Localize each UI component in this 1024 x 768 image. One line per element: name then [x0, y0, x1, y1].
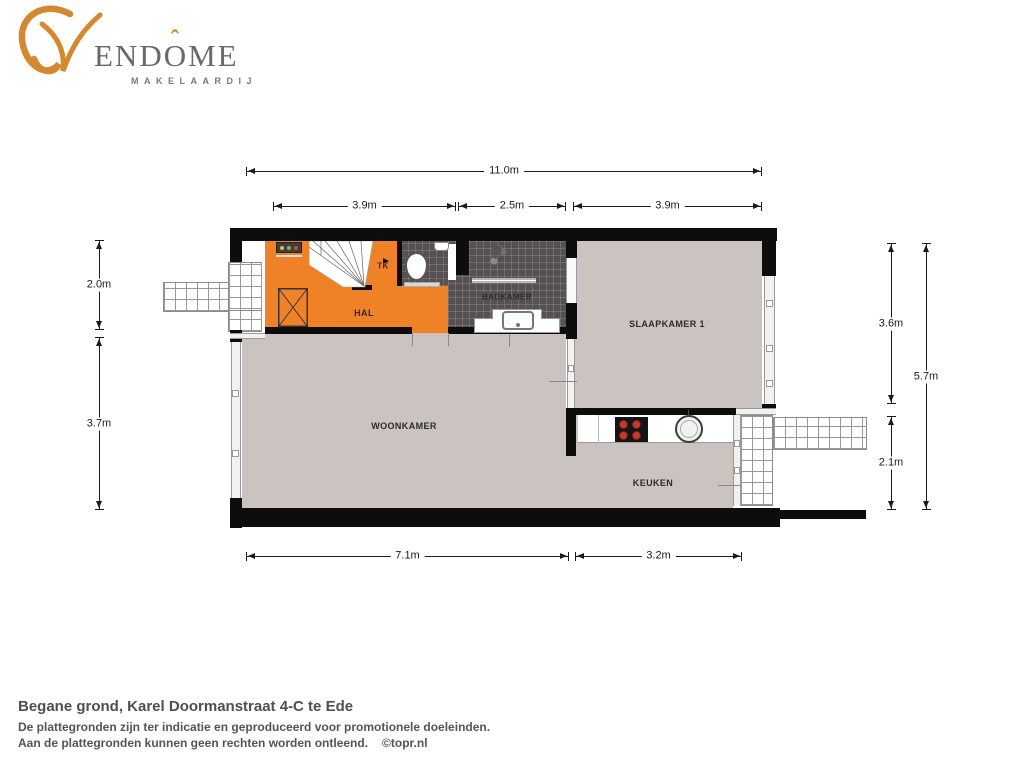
- wall-bottom: [230, 508, 780, 527]
- logo-v-icon: [14, 4, 104, 90]
- glass-wall-woonkamer-slaapkamer: [567, 339, 575, 408]
- wall-right-upper: [762, 228, 776, 276]
- window-keuken-right: [733, 415, 741, 506]
- dim-right-upper: 3.6m: [887, 243, 896, 404]
- opening-tick: [412, 333, 413, 346]
- balcony-extension-grid: [773, 417, 867, 450]
- dim-left-lower: 3.7m: [95, 337, 104, 510]
- porch-step-line: [228, 310, 264, 311]
- dim-right-lower: 2.1m: [887, 416, 896, 510]
- dim-top-seg2: 2.5m: [458, 202, 566, 211]
- basin-tap-dot: [516, 323, 520, 327]
- shower-icon: [486, 242, 514, 270]
- dim-top-seg1: 3.9m: [273, 202, 456, 211]
- burner: [619, 431, 628, 440]
- wall-toilet-badkamer: [456, 241, 469, 275]
- room-label-slaapkamer1: SLAAPKAMER 1: [629, 319, 705, 329]
- indicator-dot: [287, 246, 291, 250]
- opening-tick: [448, 333, 449, 346]
- sink-inner-ring: [680, 420, 698, 438]
- window-pane: [766, 300, 773, 307]
- window-pane: [734, 467, 740, 474]
- dim-right-total: 5.7m: [922, 243, 931, 510]
- credit-topr: ©topr.nl: [382, 736, 428, 750]
- wall-bottom-extension: [780, 510, 866, 519]
- kitchen-counter: [578, 415, 733, 443]
- disclaimer-line2: Aan de plattegronden kunnen geen rechten…: [18, 735, 490, 751]
- room-label-badkamer: BADKAMER: [482, 293, 532, 302]
- entrance-walkway-grid: [228, 262, 264, 332]
- room-label-tk: TK: [377, 262, 388, 271]
- opening-tick: [509, 334, 510, 347]
- plan-title: Begane grond, Karel Doormanstraat 4-C te…: [18, 698, 490, 715]
- meter-cupboard-icon: [278, 288, 308, 327]
- disclaimer-line1: De plattegronden zijn ter indicatie en g…: [18, 719, 490, 735]
- logo-word-o: Oˆ: [164, 38, 188, 74]
- wall-toilet-left: [397, 241, 402, 286]
- entrance-door: [261, 262, 265, 332]
- logo-circumflex: ˆ: [171, 25, 182, 55]
- dim-left-upper: 2.0m: [95, 240, 104, 330]
- logo-wordmark: ENDOˆME: [94, 38, 239, 74]
- washbasin-icon: [502, 311, 534, 330]
- caption: Begane grond, Karel Doormanstraat 4-C te…: [18, 698, 490, 751]
- boiler-unit-icon: [276, 242, 302, 253]
- balcony-grid: [740, 415, 773, 506]
- toilet-cistern-icon: [434, 242, 449, 251]
- room-label-keuken: KEUKEN: [633, 478, 673, 488]
- counter-divider-line: [598, 415, 599, 443]
- door-badkamer: [448, 244, 456, 280]
- window-pane: [568, 365, 574, 372]
- burner: [632, 420, 641, 429]
- dim-top-total: 11.0m: [246, 167, 762, 176]
- logo-word-part2: ME: [188, 38, 239, 73]
- radiator-icon: [472, 278, 536, 283]
- wall-left-upper: [230, 228, 242, 262]
- logo-word-part1: END: [94, 38, 164, 73]
- dim-bottom-seg2: 3.2m: [575, 552, 742, 561]
- wall-hal-woonkamer: [265, 327, 412, 334]
- kitchen-sink-icon: [675, 415, 703, 443]
- shelf-line: [276, 255, 302, 257]
- door-slaapkamer-balcony: [736, 408, 776, 415]
- wall-badkamer-slaapkamer-top: [566, 241, 577, 258]
- window-badkamer-interior: [566, 258, 577, 303]
- sill-hal-left: [230, 333, 265, 339]
- indicator-dot: [280, 246, 284, 250]
- wall-keuken-woonkamer: [566, 408, 576, 456]
- vendome-logo: ENDOˆME MAKELAARDIJ: [14, 4, 294, 109]
- logo-subtitle: MAKELAARDIJ: [131, 76, 257, 86]
- dim-top-seg3: 3.9m: [573, 202, 762, 211]
- keuken-woonkamer-opening: [566, 456, 576, 508]
- window-pane: [766, 345, 773, 352]
- dim-bottom-seg1: 7.1m: [246, 552, 569, 561]
- room-label-hal: HAL: [354, 308, 374, 318]
- staircase: [309, 241, 373, 289]
- room-label-woonkamer: WOONKAMER: [371, 421, 437, 431]
- wall-badkamer-slaapkamer-bottom: [566, 303, 577, 339]
- wall-slaapkamer-keuken: [566, 408, 736, 415]
- burner: [632, 431, 641, 440]
- door-swing-tick: [718, 485, 740, 486]
- entrance-porch-grid: [163, 282, 230, 312]
- window-pane: [766, 380, 773, 387]
- door-swing-tick: [549, 381, 577, 382]
- wall-top: [230, 228, 777, 241]
- window-pane: [232, 390, 239, 397]
- window-pane: [734, 440, 740, 447]
- door-toilet: [404, 282, 440, 287]
- window-woonkamer-left: [231, 342, 241, 498]
- window-pane: [232, 450, 239, 457]
- floorplan-page: ENDOˆME MAKELAARDIJ: [0, 0, 1024, 768]
- burner: [619, 420, 628, 429]
- indicator-dot: [294, 246, 298, 250]
- cooktop-icon: [615, 417, 648, 442]
